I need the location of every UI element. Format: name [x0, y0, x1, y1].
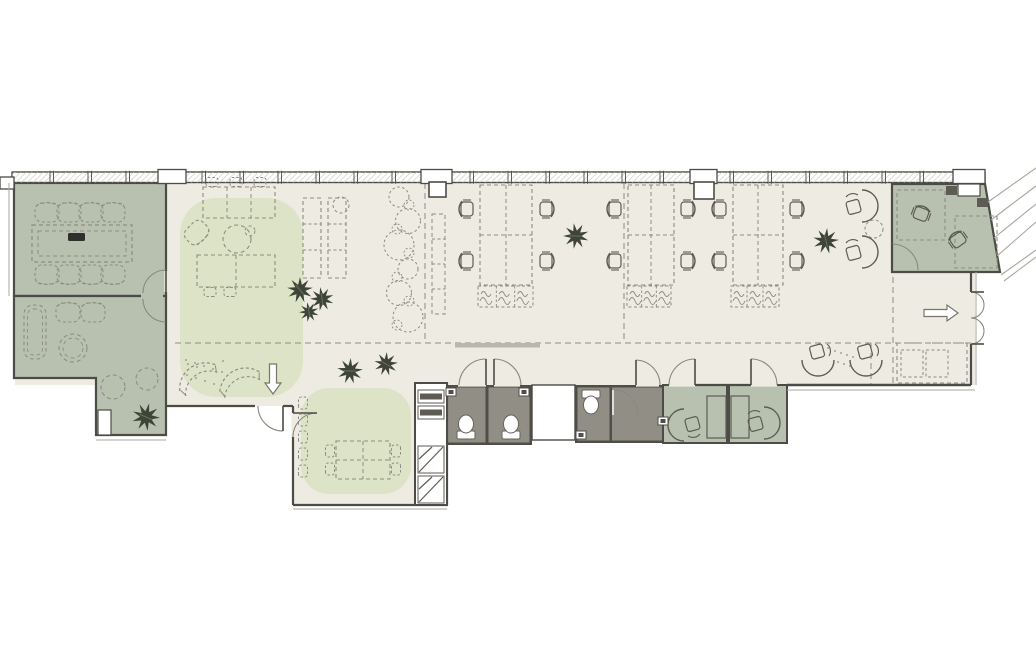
column-1 — [429, 182, 446, 197]
office-cabinet-1 — [946, 186, 957, 195]
sink — [446, 388, 456, 396]
office-room — [892, 184, 1000, 272]
sink — [658, 417, 668, 425]
zone-kitchen — [301, 388, 411, 494]
service-shaft — [532, 385, 575, 440]
zone-lounge — [180, 198, 303, 397]
lounge-room-niche — [98, 410, 111, 435]
floor-plan-svg — [0, 0, 1036, 649]
toilet — [457, 415, 475, 439]
facade-pier-5 — [953, 170, 985, 184]
sink — [576, 431, 586, 439]
phone-room-2 — [729, 385, 787, 443]
kitchen-unit-bar — [420, 394, 442, 400]
conference-phone — [68, 233, 85, 241]
floor-plan — [0, 0, 1036, 649]
toilet — [582, 390, 600, 414]
office-cabinet-2 — [977, 198, 988, 207]
sink — [519, 388, 529, 396]
wc-b-stall-2 — [612, 388, 668, 441]
facade-pier-1 — [0, 177, 14, 189]
toilet — [502, 415, 520, 439]
kitchen-unit-bar — [420, 410, 442, 416]
conference-room — [14, 183, 166, 296]
low-partition-bar — [455, 343, 540, 348]
facade-pier-2 — [158, 170, 186, 184]
plan-layers — [0, 0, 1036, 649]
office-room-niche — [958, 184, 980, 196]
column-2 — [694, 182, 714, 199]
